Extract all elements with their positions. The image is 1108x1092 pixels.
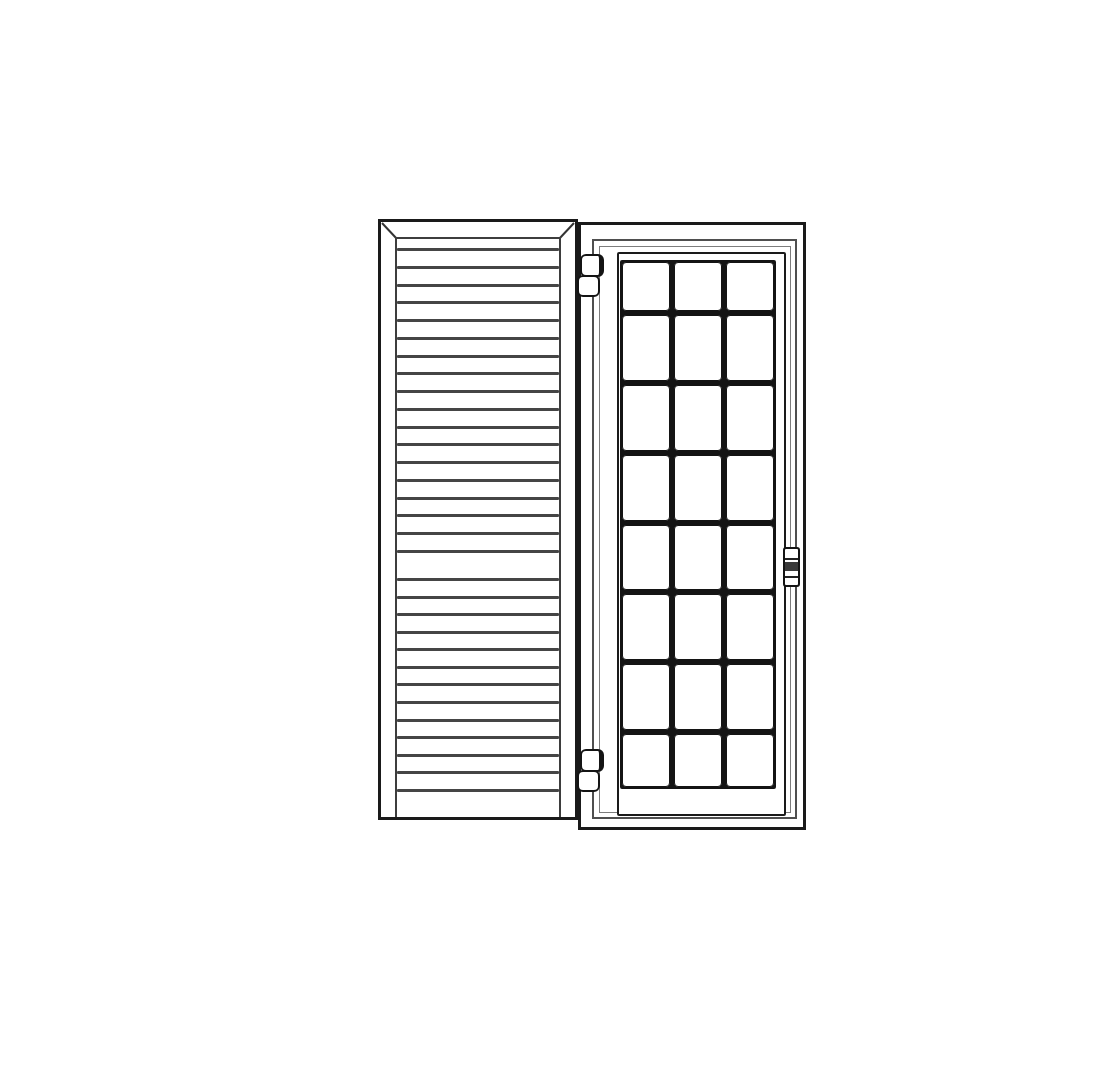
glass-lite [726, 734, 774, 787]
bottom-hinge [577, 749, 606, 793]
louver-line [397, 266, 559, 269]
louver-line [397, 497, 559, 500]
louver-line [397, 789, 559, 792]
door-elevation-drawing [0, 0, 1108, 1092]
glass-lite [674, 594, 722, 660]
shutter-mid-rail [397, 553, 559, 578]
louver-line [397, 479, 559, 482]
louver-line [397, 443, 559, 446]
louver-line [397, 532, 559, 535]
louver-line [397, 355, 559, 358]
louver-line [397, 514, 559, 517]
glass-lite [622, 385, 670, 451]
louver-line [397, 408, 559, 411]
hinge-knuckle-lower [577, 275, 600, 297]
louver-line [397, 337, 559, 340]
louver-line [397, 666, 559, 669]
louver-line [397, 648, 559, 651]
louver-line [397, 390, 559, 393]
louver-line [397, 631, 559, 634]
glass-lite [622, 525, 670, 591]
louver-line [397, 426, 559, 429]
glass-lite [674, 315, 722, 381]
glass-lite [674, 734, 722, 787]
louver-line [397, 683, 559, 686]
louver-slats-upper [397, 248, 559, 553]
hinge-knuckle-lower [577, 770, 600, 792]
glass-lite [726, 664, 774, 730]
louver-line [397, 754, 559, 757]
hinge-knuckle-upper [580, 254, 604, 277]
glass-lite [674, 262, 722, 311]
shutter-right-stile-line [559, 237, 561, 817]
louver-line [397, 248, 559, 251]
louver-line [397, 461, 559, 464]
handle-divider-line [785, 558, 798, 560]
glass-lite [726, 262, 774, 311]
louver-line [397, 372, 559, 375]
glass-lite [622, 262, 670, 311]
louver-line [397, 301, 559, 304]
louver-slats-lower [397, 578, 559, 792]
louver-line [397, 578, 559, 581]
glass-lite [674, 525, 722, 591]
glass-lite [726, 315, 774, 381]
glass-lite [622, 455, 670, 521]
hinge-knuckle-upper [580, 749, 604, 772]
glass-lite [726, 525, 774, 591]
louvered-shutter-panel [378, 219, 578, 820]
louver-line [397, 701, 559, 704]
glass-lite [622, 315, 670, 381]
handle-latch-block [785, 562, 798, 571]
door-handle [783, 547, 800, 587]
handle-divider-line [785, 576, 798, 578]
shutter-head-rail-line [395, 237, 561, 239]
glass-lite [674, 664, 722, 730]
glass-lite [726, 594, 774, 660]
louver-line [397, 613, 559, 616]
glass-lite [674, 455, 722, 521]
glass-lite [674, 385, 722, 451]
glass-lite [622, 594, 670, 660]
glass-lite-grid [620, 260, 776, 789]
glass-lite [622, 734, 670, 787]
louver-line [397, 719, 559, 722]
louver-line [397, 736, 559, 739]
glass-lite [726, 385, 774, 451]
glass-lite [726, 455, 774, 521]
louver-line [397, 771, 559, 774]
glazed-door-panel [578, 222, 806, 830]
louver-line [397, 596, 559, 599]
louver-line [397, 319, 559, 322]
louver-line [397, 284, 559, 287]
top-hinge [577, 254, 606, 298]
glass-lite [622, 664, 670, 730]
door-slab [617, 252, 786, 816]
